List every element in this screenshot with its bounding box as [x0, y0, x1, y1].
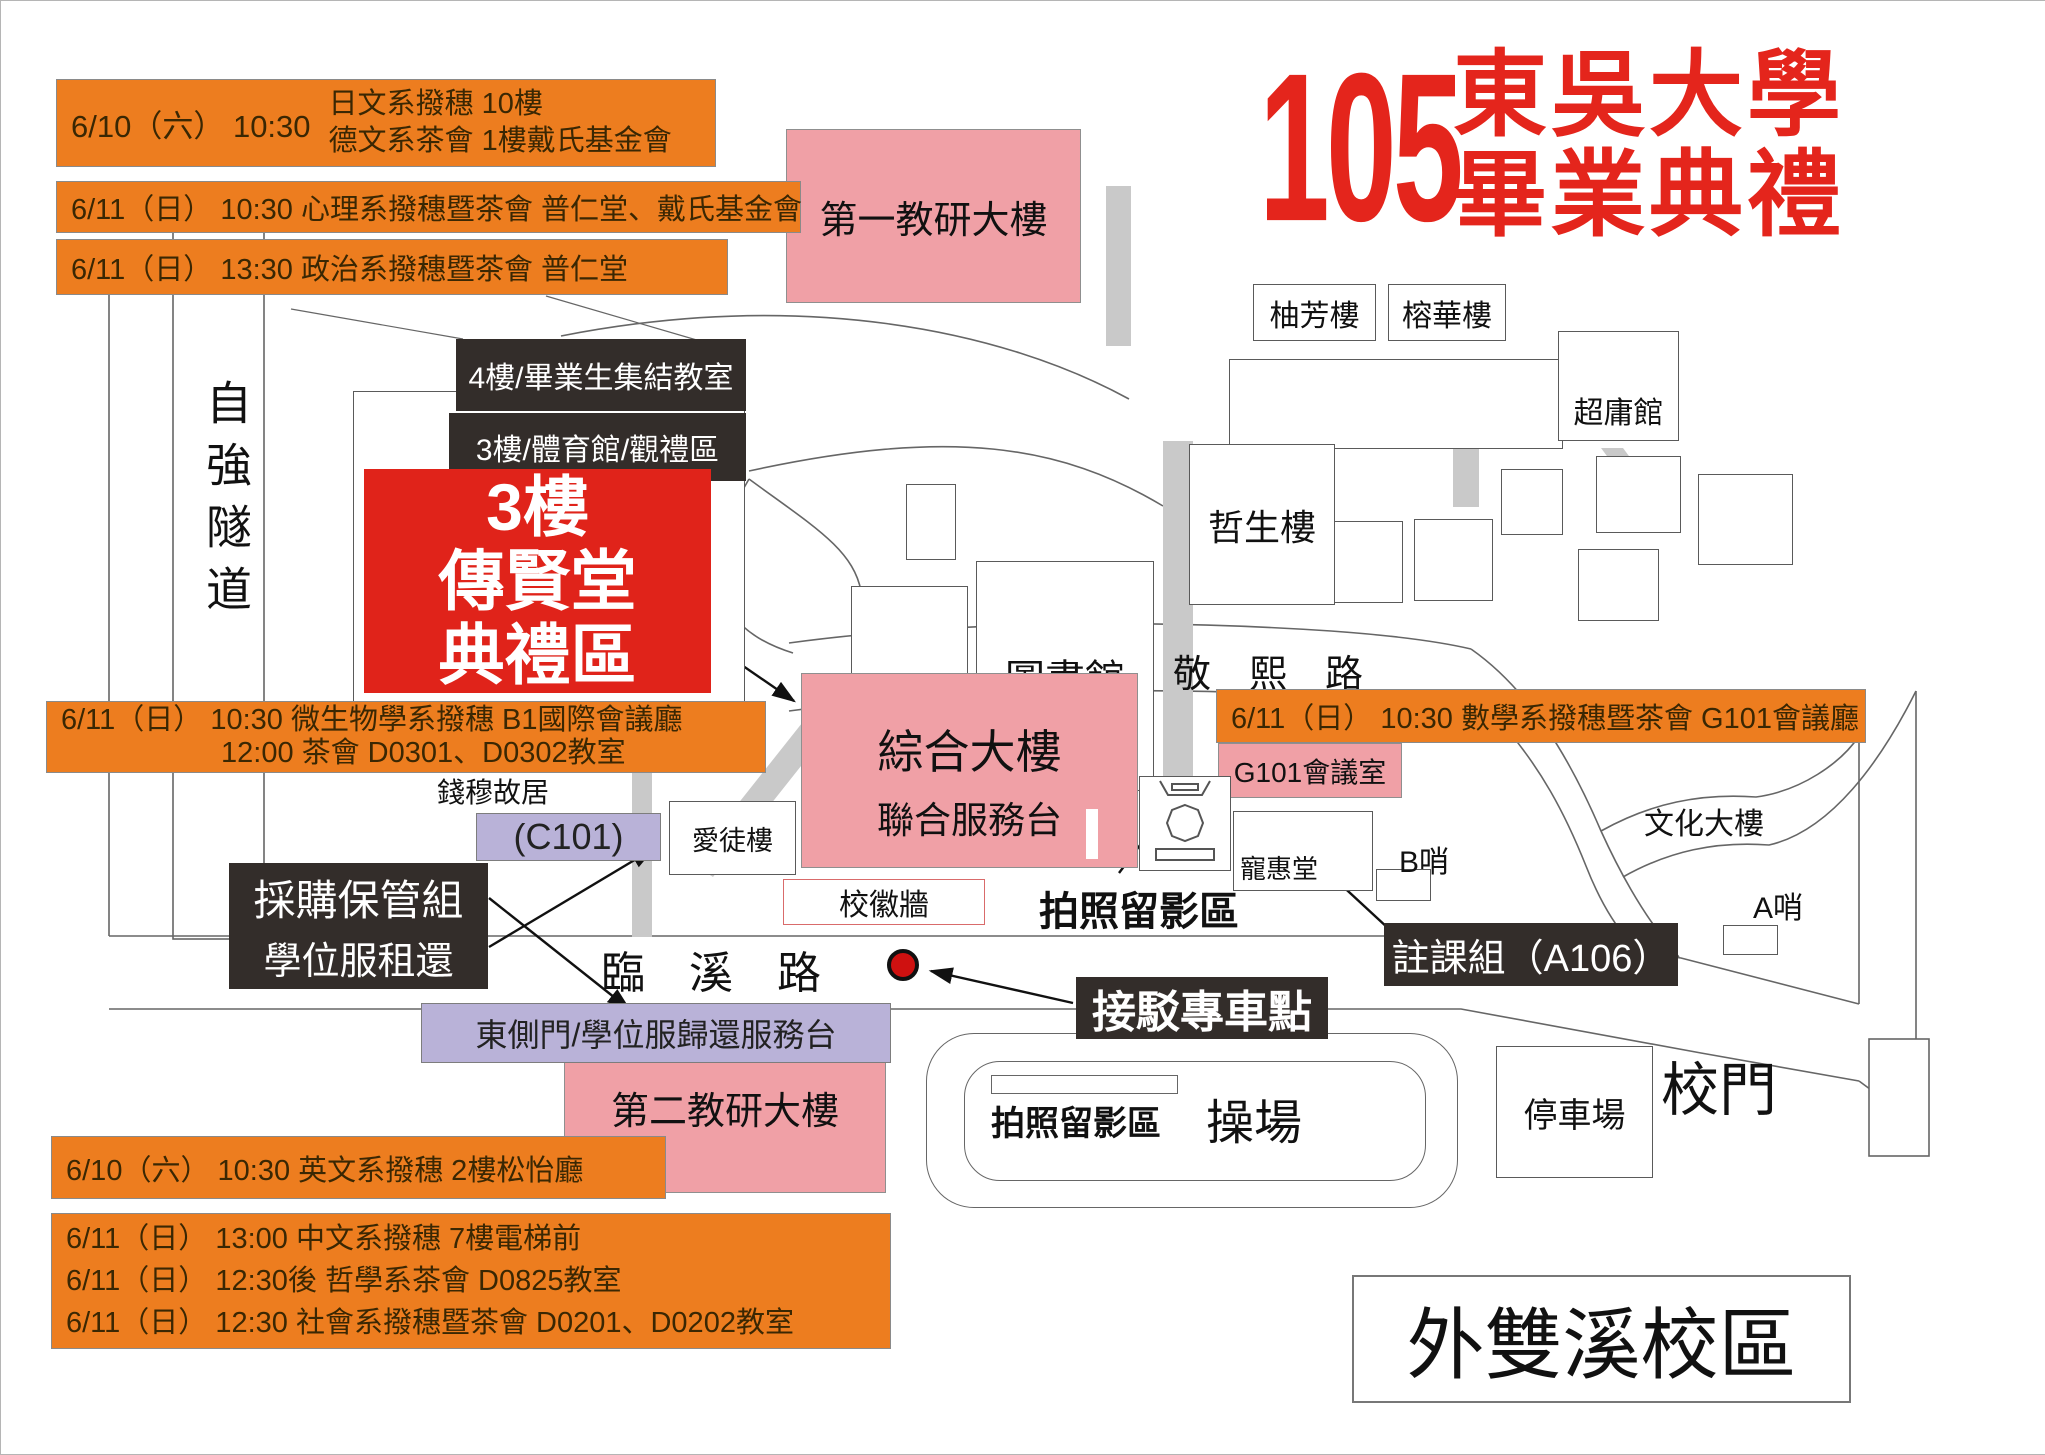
campus-name-label: 外雙溪校區	[1406, 1283, 1796, 1395]
building-unnamed-3	[1698, 474, 1793, 565]
building-zhesheng-ext	[1333, 521, 1403, 603]
building-unnamed-4	[1578, 549, 1659, 621]
building-youfang-label: 柚芳樓	[1270, 291, 1360, 335]
event-bar-math: 6/11（日） 10:30 數學系撥穗暨茶會 G101會議廳	[1216, 689, 1866, 743]
event-line2: 德文系茶會 1樓戴氏基金會	[329, 123, 672, 160]
event-chinese-label: 6/11（日） 13:00 中文系撥穗 7樓電梯前	[66, 1218, 581, 1260]
building-unnamed-1	[1501, 469, 1563, 535]
building-ronghua-label: 榕華樓	[1402, 291, 1492, 335]
building-aitu: 愛徒樓	[669, 801, 796, 875]
event-sociology-label: 6/11（日） 12:30 社會系撥穗暨茶會 D0201、D0202教室	[66, 1302, 794, 1344]
qianmu-residence-label: 錢穆故居	[437, 771, 549, 811]
building-research1-label: 第一教研大樓	[819, 189, 1047, 244]
badge-wall-label: 校徽牆	[839, 880, 929, 924]
ziqiang-tunnel-label: 自強隧道	[193, 379, 259, 627]
badge-wall-box: 校徽牆	[783, 879, 985, 925]
top-road-band	[1229, 359, 1563, 449]
parking-label: 停車場	[1524, 1088, 1626, 1137]
a-post-label: A哨	[1753, 883, 1803, 927]
title-event: 畢業典禮	[1453, 145, 1845, 245]
building-research1: 第一教研大樓	[786, 129, 1081, 303]
east-gate-label: 東側門/學位服歸還服務台	[476, 1010, 837, 1056]
procurement-callout: 採購保管組 學位服租還	[229, 863, 488, 989]
event-psychology-label: 6/11（日） 10:30 心理系撥穗暨茶會 普仁堂、戴氏基金會	[71, 186, 802, 228]
east-gate-callout: 東側門/學位服歸還服務台	[421, 1003, 891, 1063]
event-bar-politics: 6/11（日） 13:30 政治系撥穗暨茶會 普仁堂	[56, 239, 728, 295]
building-aitu-label: 愛徒樓	[692, 819, 773, 858]
playground-photo-banner	[991, 1075, 1178, 1094]
service-desk-label: 聯合服務台	[877, 790, 1062, 844]
school-gate-label: 校門	[1661, 1043, 1777, 1127]
photo-area-statue-label: 拍照留影區	[1039, 879, 1239, 937]
event-bar-psychology: 6/11（日） 10:30 心理系撥穗暨茶會 普仁堂、戴氏基金會	[56, 181, 801, 233]
event-when: 6/10（六） 10:30	[71, 101, 311, 146]
photo-area-field-label: 拍照留影區	[991, 1096, 1161, 1145]
playground-label: 操場	[1206, 1083, 1302, 1153]
building-unnamed-5	[906, 484, 956, 560]
c101-label: (C101)	[513, 816, 623, 858]
general-hall-door	[1086, 809, 1098, 859]
a-post-box	[1723, 925, 1778, 955]
building-zhesheng: 哲生樓	[1189, 444, 1335, 605]
event-math-label: 6/11（日） 10:30 數學系撥穗暨茶會 G101會議廳	[1231, 695, 1859, 737]
event-bar-microbiology: 6/11（日） 10:30 微生物學系撥穗 B1國際會議廳 12:00 茶會 D…	[46, 701, 766, 773]
linxi-road-label: 臨 溪 路	[601, 937, 821, 1001]
title-number: 105	[1259, 45, 1460, 251]
registrar-callout: 註課組（A106）	[1384, 923, 1678, 986]
building-chaoyong-label: 超庸館	[1574, 388, 1664, 432]
statue-icon	[1142, 779, 1228, 868]
building-chaoyong: 超庸館	[1558, 331, 1679, 441]
procurement-line1: 採購保管組	[253, 867, 463, 928]
building-g101-room: G101會議室	[1218, 743, 1402, 798]
parking-box: 停車場	[1496, 1046, 1653, 1178]
event-bar-bottom-group: 6/11（日） 13:00 中文系撥穗 7樓電梯前 6/11（日） 12:30後…	[51, 1213, 891, 1349]
building-chonghui-label: 寵惠堂	[1240, 849, 1318, 886]
shuttle-callout: 接駁專車點	[1076, 977, 1328, 1039]
procurement-line2: 學位服租還	[263, 930, 453, 985]
building-unnamed-7	[1414, 519, 1493, 601]
building-zhesheng-label: 哲生樓	[1208, 499, 1316, 551]
shuttle-label: 接駁專車點	[1092, 976, 1312, 1040]
ceremony-hall-line2: 傳賢堂	[439, 544, 637, 618]
statue-box	[1139, 776, 1231, 871]
shuttle-stop-dot	[887, 949, 919, 981]
event-bar-japanese-german: 6/10（六） 10:30 日文系撥穗 10樓 德文系茶會 1樓戴氏基金會	[56, 79, 716, 167]
b-post-label: B哨	[1399, 837, 1449, 881]
event-philosophy-label: 6/11（日） 12:30後 哲學系茶會 D0825教室	[66, 1260, 622, 1302]
ceremony-hall-line1: 3樓	[486, 470, 589, 544]
page-title: 105 東吳大學 畢業典禮	[1259, 45, 1845, 245]
building-ronghua: 榕華樓	[1388, 284, 1506, 341]
c101-box: (C101)	[476, 813, 661, 861]
building-research2-label: 第二教研大樓	[611, 1080, 839, 1135]
campus-map: 第一教研大樓 柚芳樓 榕華樓 超庸館 圖書館 哲生樓 綜合大樓 聯合服務台 G1…	[0, 0, 2045, 1455]
culture-building-label: 文化大樓	[1644, 799, 1764, 843]
ceremony-hall-box: 3樓 傳賢堂 典禮區	[364, 469, 711, 693]
building-general-hall-label: 綜合大樓	[878, 716, 1062, 782]
event-micro-line1: 6/11（日） 10:30 微生物學系撥穗 B1國際會議廳	[61, 704, 683, 737]
campus-name-box: 外雙溪校區	[1352, 1275, 1851, 1403]
registrar-label: 註課組（A106）	[1392, 927, 1671, 982]
building-chonghui: 寵惠堂	[1233, 811, 1373, 891]
g101-room-label: G101會議室	[1234, 751, 1387, 791]
ceremony-hall-line3: 典禮區	[439, 618, 637, 692]
building-youfang: 柚芳樓	[1253, 284, 1376, 341]
building-unnamed-2	[1596, 456, 1681, 533]
event-line1: 日文系撥穗 10樓	[329, 86, 672, 123]
title-university: 東吳大學	[1453, 45, 1845, 145]
event-english-label: 6/10（六） 10:30 英文系撥穗 2樓松怡廳	[66, 1147, 583, 1189]
event-micro-line2: 12:00 茶會 D0301、D0302教室	[221, 737, 626, 770]
event-politics-label: 6/11（日） 13:30 政治系撥穗暨茶會 普仁堂	[71, 246, 628, 288]
event-bar-english: 6/10（六） 10:30 英文系撥穗 2樓松怡廳	[51, 1136, 666, 1199]
floor3-label: 3樓/體育館/觀禮區	[476, 425, 719, 469]
floor4-callout: 4樓/畢業生集結教室	[456, 339, 746, 411]
floor4-label: 4樓/畢業生集結教室	[468, 353, 733, 397]
